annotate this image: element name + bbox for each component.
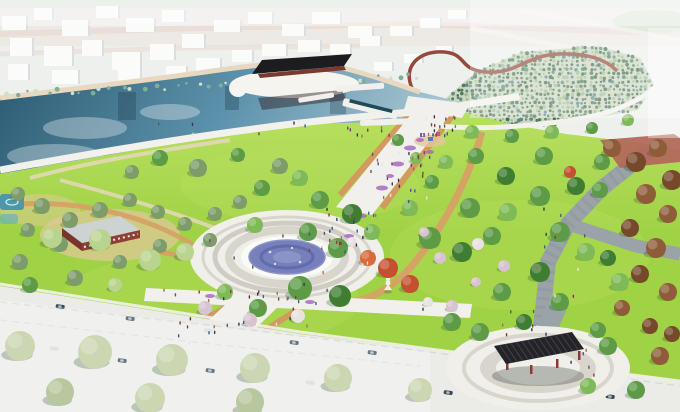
person-figure (249, 295, 250, 298)
person-figure (290, 299, 291, 302)
person-figure (537, 325, 538, 328)
tree-highlight (500, 204, 509, 213)
shore-shrub (358, 79, 362, 83)
person-figure (422, 308, 423, 311)
tree-highlight (643, 319, 651, 327)
city-building (374, 62, 394, 71)
mosaic-speckle (269, 251, 272, 254)
shore-shrub (91, 91, 96, 96)
person-figure (421, 163, 422, 166)
tree-highlight (91, 231, 102, 242)
person-figure (208, 331, 209, 334)
lantern-shadow (384, 291, 392, 294)
person-figure (263, 304, 264, 307)
tree-highlight (552, 294, 561, 303)
city-building-shade (72, 46, 74, 66)
person-figure (179, 321, 180, 324)
person-figure (298, 119, 299, 122)
city-building-shade (380, 36, 382, 46)
city-building (10, 38, 34, 56)
person-figure (439, 125, 440, 128)
person-figure (257, 292, 258, 295)
tree-highlight (498, 168, 507, 177)
tree-highlight (546, 126, 553, 133)
flower-bed (404, 146, 416, 151)
person-figure (588, 366, 589, 369)
tree-highlight (114, 256, 121, 263)
tree-highlight (312, 192, 321, 201)
person-figure (322, 271, 323, 274)
field-plant (451, 92, 455, 96)
person-figure (412, 156, 413, 159)
tree-highlight (410, 380, 422, 392)
field-plant (457, 94, 459, 96)
person-figure (447, 132, 448, 135)
tree-highlight (380, 260, 390, 270)
tree-highlight (255, 181, 263, 189)
person-figure (232, 255, 233, 258)
field-plant (464, 93, 468, 97)
shore-shrub (177, 84, 179, 86)
park-rendering (0, 0, 680, 412)
tree-highlight (232, 149, 239, 156)
person-figure (295, 296, 296, 299)
person-figure (356, 229, 357, 232)
tree-highlight (660, 284, 669, 293)
tree-highlight (238, 390, 252, 404)
person-figure (329, 239, 330, 242)
person-figure (188, 341, 189, 344)
shore-shrub (199, 82, 202, 85)
lantern-tier (386, 281, 390, 285)
person-figure (545, 333, 546, 336)
tree-highlight (447, 301, 453, 307)
tree-highlight (454, 244, 464, 254)
tree-highlight (660, 206, 669, 215)
shore-shrub (33, 89, 38, 94)
person-figure (336, 241, 337, 244)
person-figure (383, 196, 384, 199)
tree-highlight (290, 278, 302, 290)
tree-highlight (48, 380, 62, 394)
person-figure (277, 292, 278, 295)
person-figure (322, 245, 323, 248)
flower-bed (305, 300, 315, 304)
person-figure (192, 133, 193, 136)
shore-shrub (71, 91, 75, 95)
person-figure (278, 297, 279, 300)
person-figure (315, 302, 316, 305)
person-figure (422, 175, 423, 178)
person-figure (454, 116, 455, 119)
tree-highlight (615, 301, 623, 309)
person-figure (178, 334, 179, 337)
person-figure (331, 227, 332, 230)
tree-highlight (622, 220, 631, 229)
person-figure (370, 170, 371, 173)
field-plant (465, 83, 469, 87)
city-building-shade (412, 26, 414, 36)
person-figure (411, 164, 412, 167)
tree-highlight (293, 171, 301, 179)
tree-highlight (591, 323, 599, 331)
person-figure (584, 234, 585, 237)
tree-highlight (81, 338, 98, 355)
person-figure (375, 214, 376, 217)
tree-highlight (628, 382, 637, 391)
person-figure (367, 261, 368, 264)
city-building (8, 64, 30, 80)
person-figure (453, 116, 454, 119)
city-building-shade (252, 50, 254, 62)
tree-highlight (348, 238, 353, 243)
tree-highlight (444, 314, 453, 323)
pergola-post (530, 365, 533, 374)
person-figure (361, 134, 362, 137)
shore-shrub (207, 85, 211, 89)
tree-highlight (137, 385, 152, 400)
city-building (182, 34, 206, 48)
city-building-shade (32, 38, 34, 56)
person-figure (444, 134, 445, 137)
tree-highlight (469, 149, 477, 157)
person-figure (585, 349, 586, 352)
person-figure (410, 189, 411, 192)
person-figure (536, 266, 537, 269)
tree-highlight (587, 123, 593, 129)
person-figure (329, 229, 330, 232)
tree-highlight (361, 251, 369, 259)
person-figure (422, 172, 423, 175)
tree-highlight (632, 266, 641, 275)
shore-shrub (415, 77, 418, 80)
tree-highlight (393, 135, 399, 141)
tree-highlight (218, 285, 226, 293)
island-tip (229, 79, 247, 97)
tree-highlight (568, 178, 577, 187)
person-figure (399, 151, 400, 154)
tree-highlight (403, 201, 411, 209)
person-figure (408, 200, 409, 203)
person-figure (344, 250, 345, 253)
field-plant (460, 89, 463, 92)
person-figure (434, 124, 435, 127)
aerial-scene (0, 0, 680, 412)
person-figure (227, 324, 228, 327)
flower-bed (416, 138, 424, 142)
playground-structure (428, 137, 433, 141)
person-figure (328, 213, 329, 216)
person-figure (502, 323, 503, 326)
field-plant (459, 97, 462, 100)
shore-shrub (55, 87, 60, 92)
person-figure (432, 133, 433, 136)
person-figure (554, 236, 555, 239)
person-figure (354, 217, 355, 220)
person-figure (309, 249, 310, 252)
tree-highlight (600, 338, 609, 347)
person-figure (510, 310, 511, 313)
tree-highlight (44, 230, 54, 240)
shore-shrub (48, 91, 51, 94)
tree-highlight (158, 346, 174, 362)
tree-highlight (141, 251, 152, 262)
tree-highlight (93, 203, 101, 211)
person-figure (554, 294, 555, 297)
tree-highlight (466, 126, 473, 133)
city-building (390, 26, 414, 36)
person-figure (286, 297, 287, 300)
person-figure (356, 243, 357, 246)
city-building-shade (204, 34, 206, 48)
shore-shrub (96, 87, 100, 91)
person-figure (230, 290, 231, 293)
shore-shrub (362, 79, 366, 83)
tree-highlight (244, 314, 251, 321)
city-building-shade (78, 70, 80, 84)
person-figure (248, 325, 249, 328)
person-figure (533, 310, 534, 313)
person-figure (336, 218, 337, 221)
city-building (150, 44, 176, 60)
person-figure (408, 152, 409, 155)
person-figure (243, 321, 244, 324)
tree-highlight (12, 188, 19, 195)
person-figure (353, 221, 354, 224)
shore-shrub (163, 88, 166, 91)
field-plant (466, 98, 469, 101)
tree-highlight (536, 148, 545, 157)
person-figure (570, 361, 571, 364)
flower-bed (426, 150, 434, 154)
city-building (298, 40, 322, 52)
person-figure (387, 177, 388, 180)
person-figure (429, 156, 430, 159)
person-figure (175, 293, 176, 296)
tree-highlight (552, 224, 562, 234)
person-figure (368, 212, 369, 215)
person-figure (209, 239, 210, 242)
person-figure (190, 317, 191, 320)
person-figure (276, 323, 277, 326)
person-figure (371, 249, 372, 252)
person-figure (422, 133, 423, 136)
person-figure (349, 215, 350, 218)
cloud-reflection (43, 117, 127, 139)
tree-highlight (472, 278, 477, 283)
person-figure (577, 268, 578, 271)
person-figure (398, 179, 399, 182)
tree-highlight (593, 183, 601, 191)
shore-shrub (155, 84, 160, 89)
mosaic-center (273, 251, 301, 263)
person-figure (532, 324, 533, 327)
pergola-post (578, 351, 581, 360)
tree-highlight (664, 172, 674, 182)
person-figure (263, 295, 264, 298)
person-figure (452, 129, 453, 132)
tree-highlight (177, 244, 186, 253)
person-figure (340, 242, 341, 245)
field-plant (538, 118, 541, 121)
person-figure (431, 123, 432, 126)
tree-highlight (494, 284, 503, 293)
person-figure (223, 297, 224, 300)
tree-highlight (628, 154, 638, 164)
shore-shrub (127, 87, 131, 91)
tree-highlight (234, 196, 241, 203)
shore-shrub (77, 92, 80, 95)
person-figure (435, 133, 436, 136)
cloud-reflection (140, 104, 200, 120)
tree-highlight (650, 140, 659, 149)
tree-highlight (565, 167, 571, 173)
person-figure (413, 167, 414, 170)
shore-shrub (123, 86, 127, 90)
city-building (52, 70, 80, 84)
tree-highlight (420, 228, 425, 233)
person-figure (390, 194, 391, 197)
tree-highlight (126, 166, 133, 173)
city-building (232, 50, 254, 62)
tree-highlight (273, 159, 281, 167)
shore-shrub (143, 87, 148, 92)
person-figure (187, 325, 188, 328)
tree-highlight (7, 333, 22, 348)
city-building-shade (320, 40, 322, 52)
pergola-post (556, 359, 559, 368)
city-building-shade (174, 44, 176, 60)
person-figure (531, 328, 532, 331)
field-plant (511, 119, 513, 121)
person-figure (252, 265, 253, 268)
tree-highlight (604, 140, 613, 149)
tree-highlight (63, 213, 71, 221)
city-building-shade (140, 52, 142, 70)
tree-highlight (330, 240, 340, 250)
person-figure (373, 214, 374, 217)
person-figure (367, 128, 368, 131)
person-figure (434, 129, 435, 132)
person-figure (326, 289, 327, 292)
field-plant (462, 84, 466, 88)
tree-highlight (440, 156, 447, 163)
tree-highlight (411, 153, 417, 159)
tree-highlight (517, 315, 525, 323)
tree-highlight (499, 261, 505, 267)
person-figure (198, 290, 199, 293)
flower-bed (392, 162, 404, 167)
city-building (262, 44, 288, 56)
person-figure (158, 122, 159, 125)
person-figure (434, 115, 435, 118)
tree-highlight (581, 379, 589, 387)
tree-highlight (199, 302, 206, 309)
city-building-shade (102, 40, 104, 56)
person-figure (309, 233, 310, 236)
tree-highlight (402, 276, 411, 285)
person-figure (196, 319, 197, 322)
person-figure (366, 227, 367, 230)
field-plant (502, 118, 504, 120)
tree-highlight (462, 200, 472, 210)
tree-highlight (344, 206, 354, 216)
person-figure (381, 126, 382, 129)
person-figure (163, 288, 164, 291)
person-figure (544, 245, 545, 248)
tree-highlight (250, 300, 259, 309)
city-building (82, 40, 104, 56)
tree-highlight (595, 155, 603, 163)
person-figure (326, 208, 327, 211)
person-figure (282, 234, 283, 237)
field-plant (544, 118, 547, 121)
tree-highlight (179, 218, 186, 225)
city-building-shade (392, 62, 394, 71)
tree-highlight (612, 274, 621, 283)
person-figure (428, 133, 429, 136)
field-plant (457, 96, 460, 99)
person-figure (377, 159, 378, 162)
tree-highlight (601, 251, 609, 259)
mosaic-speckle (299, 261, 302, 264)
tree-highlight (35, 199, 43, 207)
field-plant (457, 89, 460, 92)
teal-canopy (0, 214, 18, 224)
tree-highlight (331, 287, 342, 298)
person-figure (545, 233, 546, 236)
person-figure (377, 162, 378, 165)
person-figure (595, 353, 596, 356)
person-figure (362, 263, 363, 266)
tree-highlight (22, 224, 29, 231)
tree-highlight (472, 324, 481, 333)
person-figure (445, 117, 446, 120)
tree-highlight (665, 327, 673, 335)
person-figure (303, 283, 304, 286)
tree-highlight (300, 224, 309, 233)
tree-highlight (648, 240, 658, 250)
person-figure (399, 185, 400, 188)
person-figure (583, 352, 584, 355)
tree-highlight (13, 255, 21, 263)
person-figure (392, 182, 393, 185)
person-figure (388, 134, 389, 137)
shore-shrub (399, 75, 404, 80)
person-figure (391, 162, 392, 165)
shore-shrub (26, 90, 29, 93)
shore-shrub (406, 72, 410, 76)
tree-highlight (154, 240, 161, 247)
person-figure (304, 124, 305, 127)
person-figure (424, 151, 425, 154)
tree-highlight (109, 279, 116, 286)
city-building (44, 46, 74, 66)
tree-highlight (638, 186, 648, 196)
field-plant (460, 92, 464, 96)
tree-highlight (190, 160, 199, 169)
person-figure (357, 133, 358, 136)
city-building (330, 44, 352, 54)
person-figure (341, 236, 342, 239)
shore-shrub (185, 82, 188, 85)
person-figure (322, 235, 323, 238)
pergola-shadow (492, 366, 584, 386)
person-figure (362, 236, 363, 239)
person-figure (593, 373, 594, 376)
person-figure (426, 118, 427, 121)
person-figure (350, 128, 351, 131)
